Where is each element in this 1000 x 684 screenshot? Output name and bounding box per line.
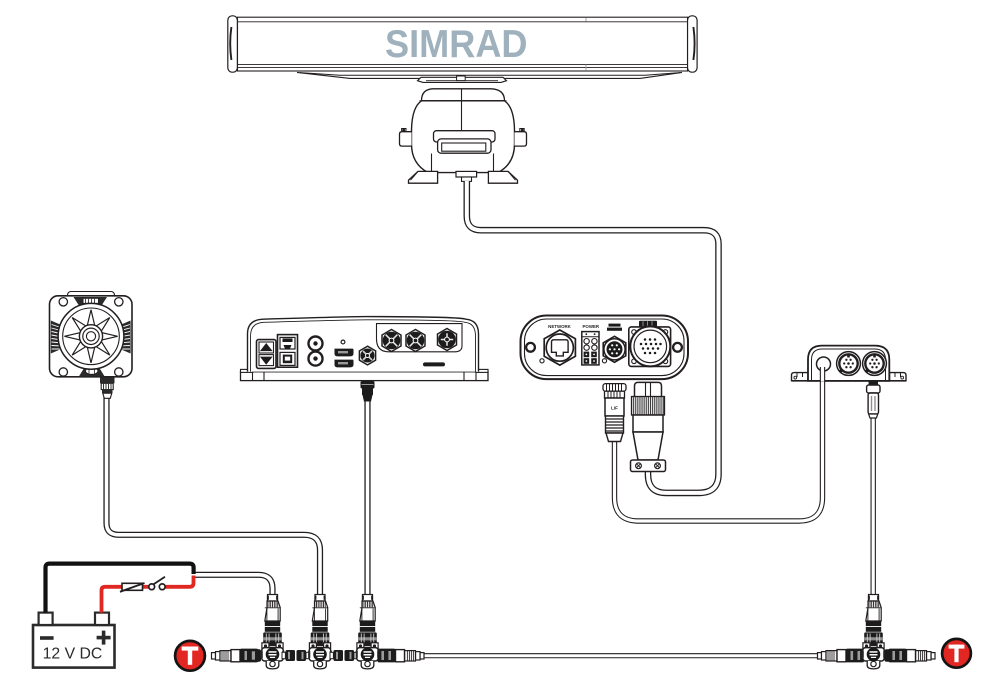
svg-text:LIF: LIF [611, 406, 618, 411]
svg-text:SIMRAD: SIMRAD [385, 23, 528, 66]
svg-text:12 V DC: 12 V DC [43, 646, 103, 663]
svg-text:NETWORK: NETWORK [548, 324, 572, 329]
svg-text:POWER: POWER [583, 324, 600, 329]
